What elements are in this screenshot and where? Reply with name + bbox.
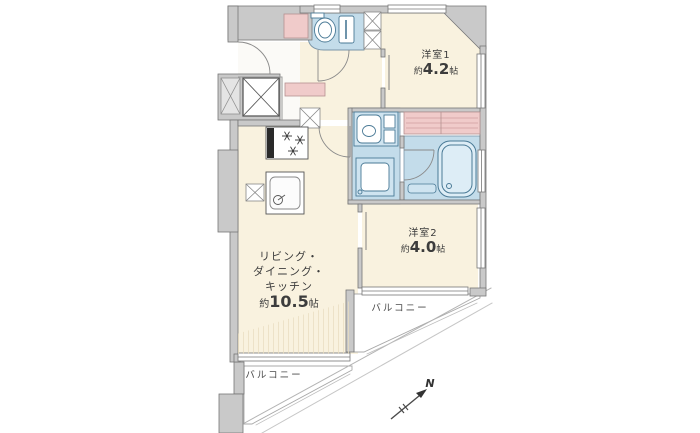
shoe-cabinet bbox=[285, 83, 325, 96]
balcony-upper-label: バルコニー bbox=[365, 302, 435, 315]
window-bath-right bbox=[478, 150, 485, 192]
elevator-shaft bbox=[221, 78, 279, 116]
bath-counter bbox=[408, 184, 436, 193]
wall-bath-divider-bottom bbox=[400, 182, 404, 200]
room1-area: 約4.2帖 bbox=[396, 63, 476, 79]
kitchen-sink bbox=[266, 172, 304, 214]
window-room1-right bbox=[477, 54, 485, 108]
window-room2-right bbox=[477, 208, 485, 268]
washbasin bbox=[354, 112, 398, 146]
wall-kitchen-top bbox=[238, 120, 300, 126]
pipe-space-hall bbox=[300, 108, 320, 128]
window-toilet-top bbox=[314, 5, 340, 13]
floor-plan-drawing bbox=[0, 0, 700, 433]
ldk-name-line1: リビング・ bbox=[249, 249, 329, 264]
main-closet bbox=[404, 112, 480, 134]
wall-bath-divider-top bbox=[400, 136, 404, 148]
pipe-space-kitchen bbox=[246, 184, 264, 201]
ldk-name-line2: ダイニング・ bbox=[249, 264, 329, 279]
pipe-space-box bbox=[364, 12, 381, 49]
bathtub bbox=[438, 141, 476, 197]
window-room2-bottom bbox=[362, 287, 468, 295]
ldk-label: リビング・ ダイニング・ キッチン 約10.5帖 bbox=[249, 249, 329, 311]
window-room1-top bbox=[388, 5, 446, 13]
window-ldk-bottom bbox=[238, 353, 350, 361]
wall-bottom-left-block bbox=[219, 394, 243, 433]
floor-plan: 洋室1 約4.2帖 洋室2 約4.0帖 リビング・ ダイニング・ キッチン 約1… bbox=[0, 0, 700, 433]
entry-closet bbox=[284, 14, 308, 38]
washing-machine bbox=[356, 158, 394, 196]
room2-label: 洋室2 約4.0帖 bbox=[383, 227, 463, 257]
wall-left-upper bbox=[228, 6, 238, 42]
room2-area: 約4.0帖 bbox=[383, 241, 463, 257]
balcony-lower-label: バルコニー bbox=[239, 369, 309, 382]
wall-room1-bottom bbox=[350, 108, 480, 112]
compass-north-label: N bbox=[420, 377, 440, 390]
compass bbox=[391, 389, 427, 419]
kitchen-stove bbox=[266, 127, 308, 159]
ldk-area: 約10.5帖 bbox=[249, 295, 329, 311]
wall-room2-top bbox=[348, 200, 480, 204]
wall-room1-left-a bbox=[381, 49, 385, 57]
wall-room2-left-b bbox=[358, 248, 362, 288]
wall-room1-left-b bbox=[381, 88, 385, 108]
room1-label: 洋室1 約4.2帖 bbox=[396, 49, 476, 79]
wall-room2-left-a bbox=[358, 204, 362, 212]
wall-left-bump bbox=[218, 150, 238, 232]
wall-balcony-right-stub bbox=[470, 288, 486, 296]
